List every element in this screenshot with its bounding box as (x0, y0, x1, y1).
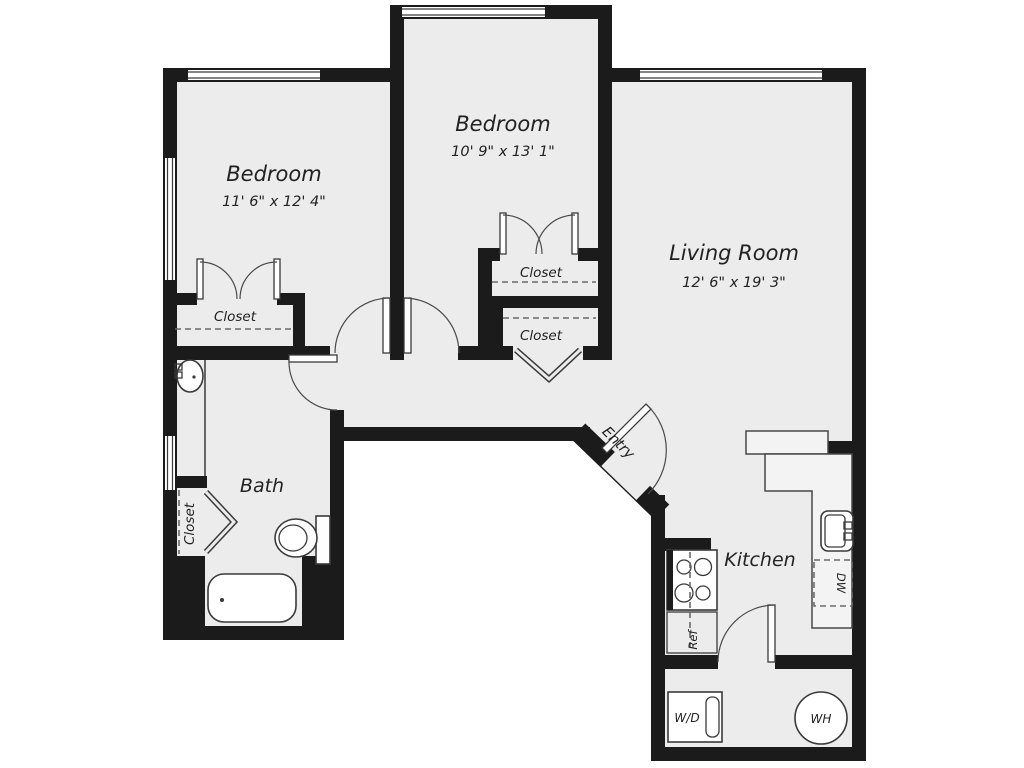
living-room-label: Living Room (669, 241, 799, 265)
wall-corridor-bottom (330, 427, 590, 441)
bedroom-left-label: Bedroom (226, 162, 321, 186)
wall-midcloset-lower-left (478, 296, 503, 360)
bathtub (208, 574, 296, 622)
bath-sink-drain (192, 375, 195, 378)
wall-tub-block-right (302, 556, 344, 626)
wall-stove-stub (651, 538, 711, 551)
water-heater-label: WH (811, 712, 832, 726)
kitchen-label: Kitchen (724, 549, 795, 571)
wall-living-left-divider (598, 5, 612, 360)
window-midbed-top (402, 7, 545, 17)
wall-right-exterior (852, 68, 866, 761)
window-leftbed-side (165, 158, 175, 280)
bath-sink (177, 360, 203, 392)
wall-counter-stub (828, 441, 852, 455)
wall-laundry-bottom (651, 747, 866, 761)
wall-bedroom-divider (390, 5, 404, 360)
wall-hall-top-right-stub (583, 346, 598, 360)
window-bath-side (165, 436, 175, 490)
counter-peninsula (746, 431, 828, 454)
wall-leftcloset-stub-left (163, 293, 197, 305)
wall-kitchen-left (651, 495, 665, 761)
living-room-dims: 12' 6" x 19' 3" (682, 275, 786, 291)
kitchen-sink (821, 511, 853, 551)
midbed-closet-lower-label: Closet (520, 328, 563, 344)
window-living-top (640, 70, 822, 80)
wall-bathwing-bottom (163, 626, 344, 640)
midbed-closet-upper-label: Closet (520, 265, 563, 281)
bedroom-middle-label: Bedroom (455, 112, 550, 136)
bedroom-left-dims: 11' 6" x 12' 4" (222, 194, 326, 210)
wall-leftcloset-right (293, 293, 305, 346)
window-leftbed-top (188, 70, 320, 80)
washer-dryer-label: W/D (674, 711, 699, 725)
floor-plan-page: Bedroom 11' 6" x 12' 4" Bedroom 10' 9" x… (0, 0, 1024, 768)
wall-midcloset-left (478, 248, 492, 296)
bedroom-middle-dims: 10' 9" x 13' 1" (451, 144, 555, 160)
dishwasher-label: DW (834, 573, 848, 594)
bath-label: Bath (240, 475, 284, 497)
floor-plan: Bedroom 11' 6" x 12' 4" Bedroom 10' 9" x… (0, 0, 1024, 768)
refrigerator-label: Ref (686, 628, 700, 649)
wall-tub-block-left (163, 556, 205, 626)
leftbed-closet-label: Closet (214, 309, 257, 325)
bath-closet-label: Closet (182, 502, 198, 545)
wall-midcloset-stub-right (578, 248, 598, 261)
stove (667, 550, 717, 610)
wall-kitchen-bottom-left (651, 655, 718, 669)
wall-kitchen-bottom-right (775, 655, 852, 669)
